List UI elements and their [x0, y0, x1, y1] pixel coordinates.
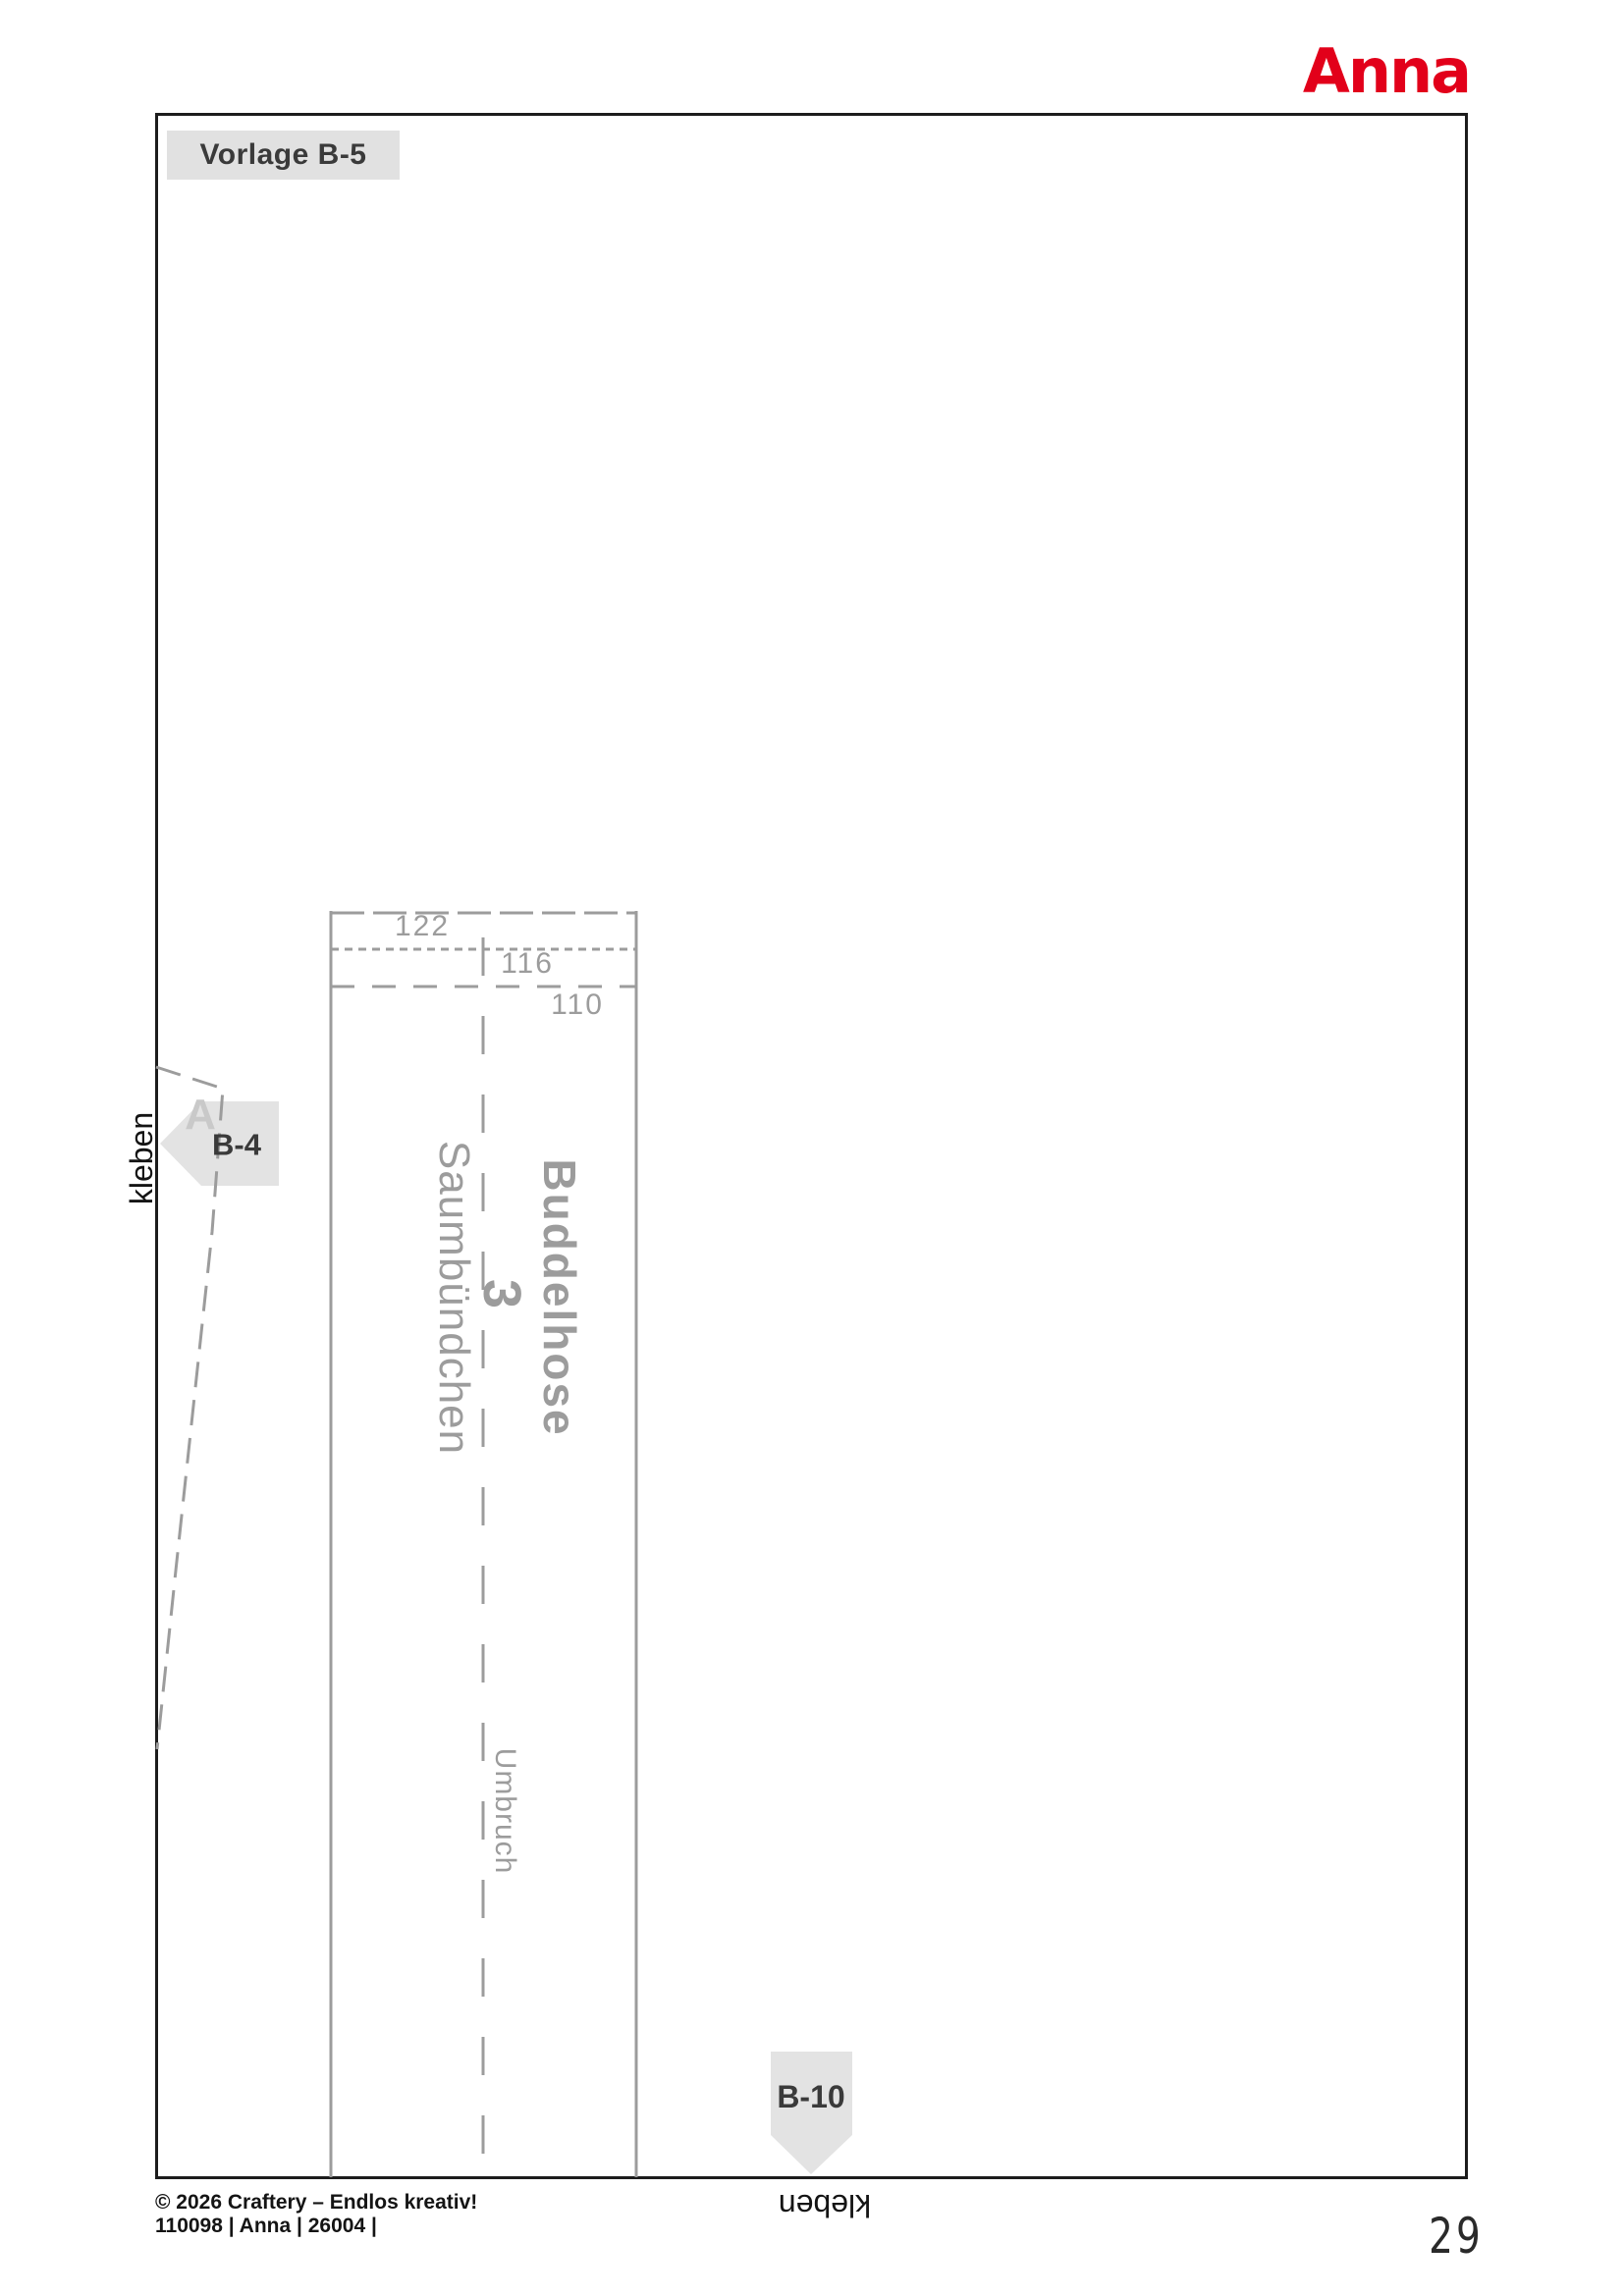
glue-text-left: kleben	[126, 1112, 157, 1204]
size-label-122: 122	[395, 912, 450, 941]
piece-name-label: Saumbündchen	[432, 1141, 475, 1455]
glue-text-bottom: kleben	[779, 2190, 871, 2221]
b4-arrow-label: B-4	[212, 1130, 261, 1160]
size-label-110: 110	[551, 990, 604, 1020]
size-label-116: 116	[501, 949, 554, 979]
b10-arrow-label: B-10	[777, 2081, 844, 2112]
footer-block: © 2026 Craftery – Endlos kreativ! 110098…	[155, 2191, 477, 2238]
fold-line-label: Umbruch	[490, 1748, 519, 1875]
page-number: 29	[1429, 2208, 1484, 2265]
garment-name-label: Buddelhose	[537, 1158, 582, 1436]
piece-number-label: 3	[475, 1279, 528, 1308]
pattern-sheet-page: Anna Vorlage B-5 122 116 110 Buddelhose …	[0, 0, 1624, 2296]
footer-issue-info: 110098 | Anna | 26004 |	[155, 2215, 477, 2238]
footer-copyright: © 2026 Craftery – Endlos kreativ!	[155, 2191, 477, 2215]
